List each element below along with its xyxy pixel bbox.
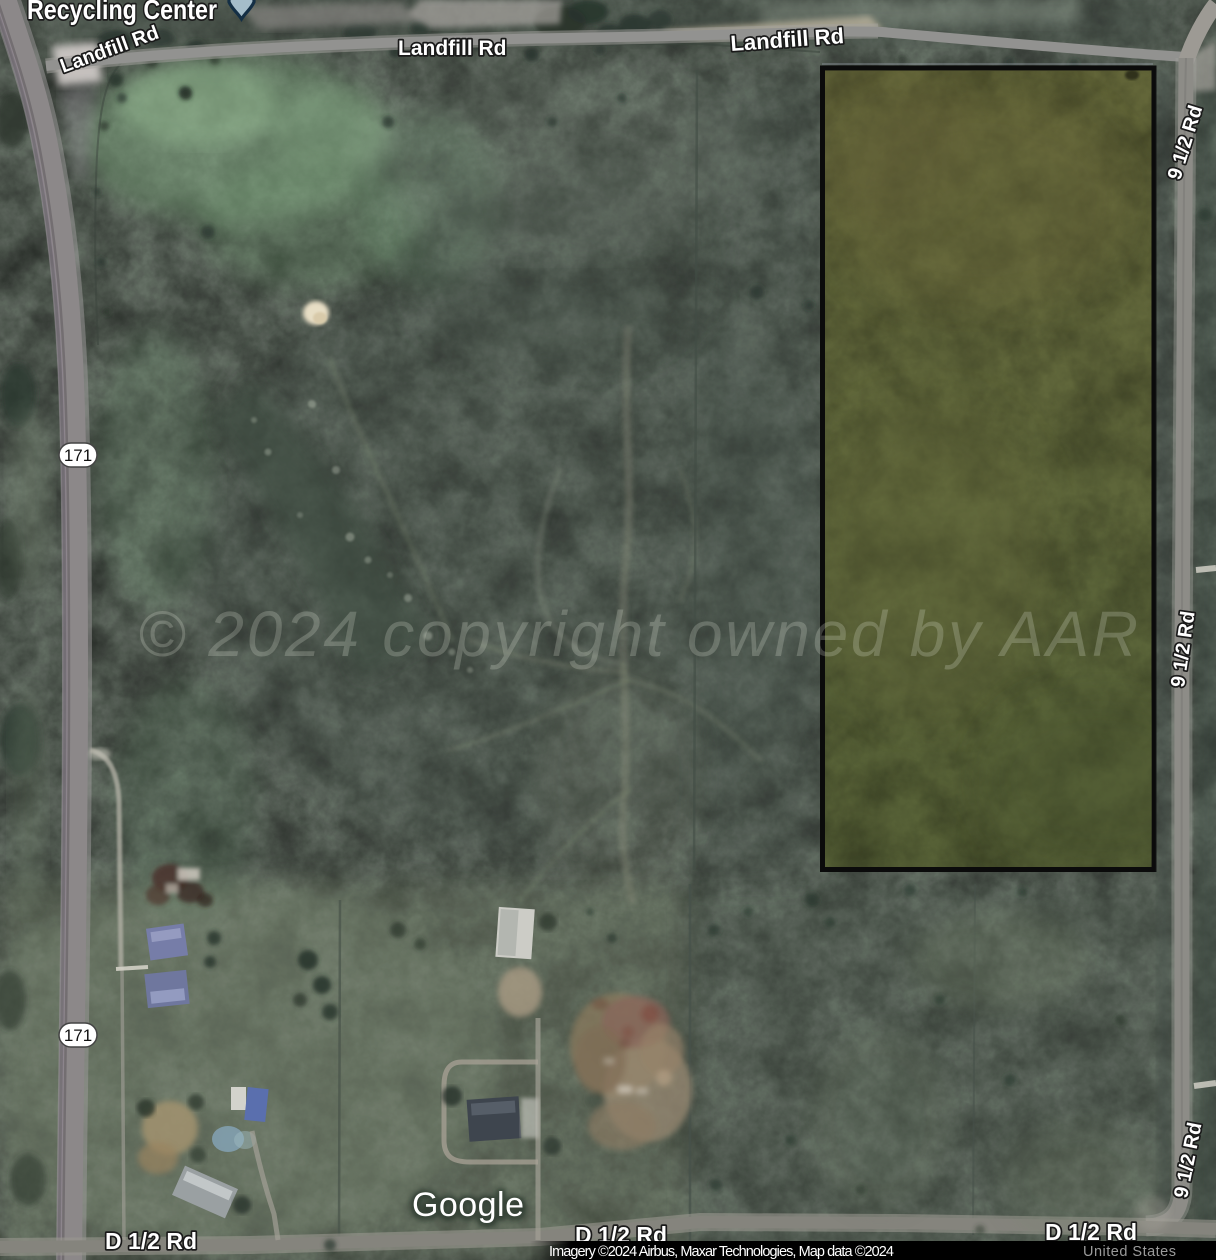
svg-text:Recycling Center: Recycling Center <box>27 0 217 25</box>
svg-text:Imagery ©2024 Airbus, Maxar Te: Imagery ©2024 Airbus, Maxar Technologies… <box>549 1244 894 1260</box>
svg-text:D 1/2 Rd: D 1/2 Rd <box>105 1228 197 1254</box>
svg-text:171: 171 <box>64 446 92 465</box>
svg-text:Google: Google <box>412 1186 524 1224</box>
svg-text:171: 171 <box>64 1026 92 1045</box>
svg-text:United States: United States <box>1083 1244 1176 1260</box>
svg-text:Landfill Rd: Landfill Rd <box>398 37 507 60</box>
svg-text:© 2024 copyright owned by AAR: © 2024 copyright owned by AAR <box>138 598 1138 670</box>
